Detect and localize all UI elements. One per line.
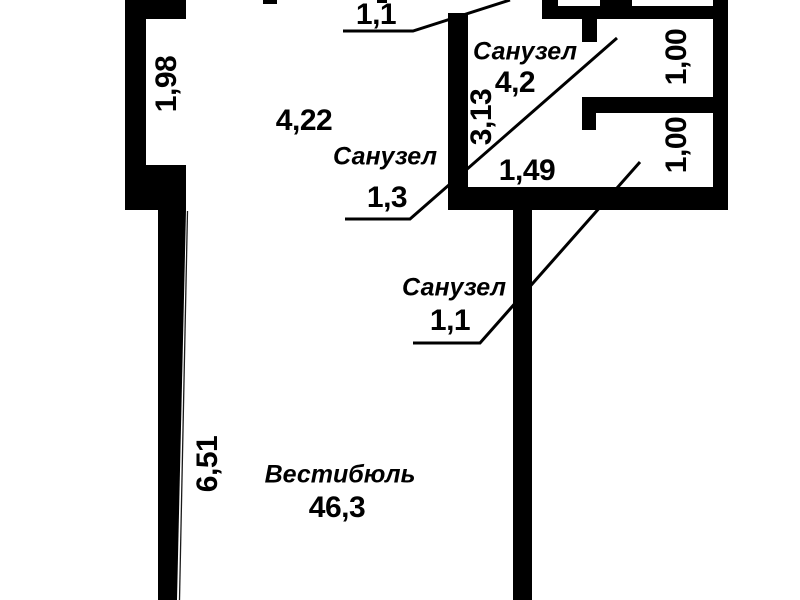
room-top-area: 1,1 [356, 0, 396, 30]
room-vestibule-name: Вестибюль [265, 463, 416, 488]
wall-left-top-cap [125, 0, 186, 19]
wall-inner-pier-upper [582, 19, 597, 42]
dimension-4-22: 4,22 [276, 106, 332, 136]
wall-top-stub-left [542, 0, 558, 19]
room-sanuzel-42-area: 4,2 [495, 68, 535, 98]
dimension-1-00-upper: 1,00 [662, 29, 692, 85]
dimension-1-00-lower: 1,00 [662, 117, 692, 173]
dimension-3-13: 3,13 [467, 89, 497, 145]
room-sanuzel-11-name: Санузел [402, 276, 506, 301]
wall-inner-pier-lower [582, 113, 596, 130]
wall-left-thin [125, 19, 146, 165]
wall-bath-block-bottom [448, 187, 728, 210]
dimension-6-51: 6,51 [193, 436, 223, 492]
room-sanuzel-42-name: Санузел [473, 40, 577, 65]
dimension-1-98: 1,98 [152, 56, 182, 112]
room-sanuzel-11-area: 1,1 [430, 306, 470, 336]
floor-plan: 1,98 3,13 1,00 1,00 6,51 4,22 1,49 1,1 С… [0, 0, 800, 600]
dimension-1-49: 1,49 [499, 156, 555, 186]
wall-inner-horizontal [582, 97, 723, 113]
room-sanuzel-13-area: 1,3 [367, 183, 407, 213]
wall-left-lower [158, 210, 186, 600]
wall-left-bottom-cap [125, 165, 186, 210]
wall-top-stub-right [600, 0, 632, 19]
wall-vestibule-right [513, 187, 532, 600]
cutoff-text-fragment-left [263, 0, 277, 4]
room-vestibule-area: 46,3 [309, 493, 365, 523]
room-sanuzel-13-name: Санузел [333, 145, 437, 170]
wall-top-bar [542, 6, 728, 19]
floor-plan-drawing [0, 0, 800, 600]
